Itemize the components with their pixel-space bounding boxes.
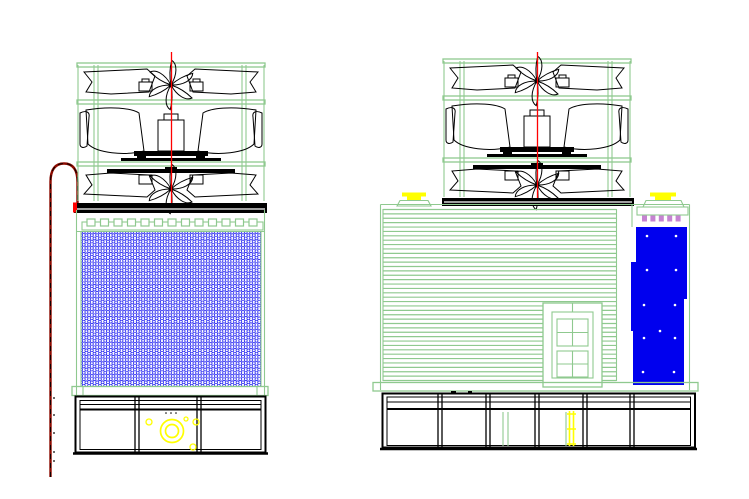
- railing-post: [155, 219, 163, 226]
- panel-dot: [673, 371, 676, 374]
- railing-post: [87, 219, 95, 226]
- panel-dot: [674, 304, 677, 307]
- railing-post: [249, 219, 257, 226]
- tower-body-side: [373, 205, 698, 392]
- pump-circle-outer: [161, 420, 184, 443]
- panel-dot: [674, 337, 677, 340]
- fan-deck: [74, 203, 267, 213]
- access-door: [543, 303, 602, 387]
- side-elevation-view: [373, 52, 698, 449]
- basin-side: [380, 391, 697, 449]
- basin-dividers: [135, 397, 201, 452]
- tower-body-front: [72, 210, 268, 396]
- pipe-tick: [53, 451, 55, 453]
- railing-post: [168, 219, 176, 226]
- cad-drawing-canvas: [0, 0, 749, 499]
- panel-dot: [675, 269, 678, 272]
- drain-circle: [184, 417, 188, 421]
- panel-dot: [643, 337, 646, 340]
- drain-circle: [146, 419, 152, 425]
- railing-post: [182, 219, 190, 226]
- cooling-tower-drawing: [0, 0, 749, 499]
- railing-post: [195, 219, 203, 226]
- panel-dot: [646, 269, 649, 272]
- blue-side-panel: [631, 227, 687, 385]
- pipe-tick-marks: [53, 397, 55, 462]
- railing-post: [141, 219, 149, 226]
- pump-circle-inner: [166, 425, 179, 438]
- railing-post: [236, 219, 244, 226]
- pipe-tick: [53, 414, 55, 416]
- pump-drain-symbols: [146, 412, 199, 450]
- basin-dot: [175, 412, 177, 414]
- panel-dot: [659, 330, 662, 333]
- basin-dot: [165, 412, 167, 414]
- drain-circle: [193, 419, 199, 425]
- basin-ladder-yellow: [567, 411, 576, 446]
- railing-post: [128, 219, 136, 226]
- right-vent-cap: [637, 193, 688, 222]
- front-elevation-view: [51, 52, 269, 477]
- vent-nozzles: [642, 216, 681, 222]
- railing-post: [209, 219, 217, 226]
- pipe-tick: [53, 460, 55, 462]
- railing-band: [82, 219, 263, 230]
- vent-nozzle: [642, 216, 647, 222]
- lower-band: [72, 387, 268, 396]
- basin-dot: [170, 412, 172, 414]
- vent-nozzle: [667, 216, 672, 222]
- panel-dot: [642, 371, 645, 374]
- panel-dot: [646, 235, 649, 238]
- panel-dot: [643, 304, 646, 307]
- railing-post: [222, 219, 230, 226]
- vent-nozzle: [659, 216, 664, 222]
- fill-media-mesh: [81, 232, 261, 386]
- panel-dot: [675, 235, 678, 238]
- railing-post: [101, 219, 109, 226]
- pipe-tick: [53, 397, 55, 399]
- vent-nozzle: [650, 216, 655, 222]
- vent-nozzle: [676, 216, 681, 222]
- railing-post: [114, 219, 122, 226]
- pipe-tick: [53, 432, 55, 434]
- basin-front: [73, 397, 268, 454]
